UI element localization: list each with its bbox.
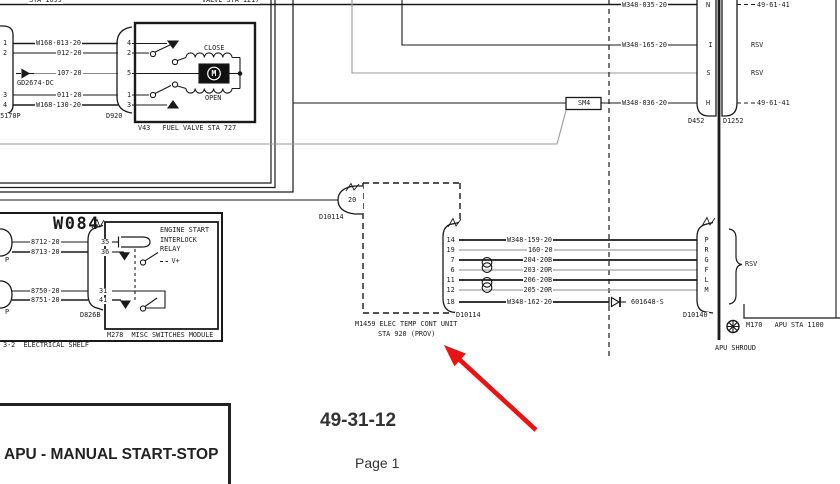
- diode-gd2674-icon: [16, 70, 34, 78]
- pin-label: 3: [126, 102, 132, 109]
- wire-label: 8713-20: [30, 249, 61, 256]
- pin-label: 19: [446, 247, 456, 254]
- section-number: 49-31-12: [320, 410, 396, 432]
- top-fragment-left: STA 1099: [28, 0, 63, 4]
- pin-label: 35: [100, 239, 110, 246]
- wire-label: W348-165-20: [621, 42, 668, 49]
- relay-name: RELAY: [159, 246, 181, 253]
- pin-label: 3: [2, 92, 8, 99]
- title-block-border: [0, 405, 230, 484]
- pin-label: 14: [446, 237, 456, 244]
- fuel-valve-box: [135, 23, 255, 122]
- equipment-label: V43 FUEL VALVE STA 727: [137, 125, 237, 132]
- pin-label: 36: [100, 249, 110, 256]
- connector-label: D920: [105, 113, 123, 120]
- pin-label: L: [704, 277, 710, 284]
- relay-name: INTERLOCK: [159, 237, 198, 244]
- wire-label: 011-20: [56, 92, 83, 99]
- wire-label: 206-20B: [523, 277, 554, 284]
- plug-label: P: [4, 309, 10, 316]
- pin-label: 5: [126, 70, 132, 77]
- shelf-label: 3-2 ELECTRICAL SHELF: [2, 342, 90, 349]
- pin-label: 20: [347, 197, 357, 204]
- close-coil-icon: [186, 53, 232, 58]
- plug-p-top-shape: [0, 229, 12, 256]
- relay-coil-icon: [119, 237, 151, 248]
- pin-label: 7: [450, 257, 456, 264]
- connector-d1252-shape: [722, 0, 737, 116]
- module-label: M278 MISC SWITCHES MODULE: [106, 332, 214, 339]
- wire-s-row: [352, 0, 697, 73]
- contact-arrow-down-icon: [121, 301, 130, 308]
- vplus-label: V+: [171, 258, 181, 265]
- diagram-title: APU - MANUAL START-STOP: [4, 446, 218, 464]
- wire-label: W168-130-20: [35, 102, 82, 109]
- wire-label: W348-036-20: [621, 100, 668, 107]
- plug-p-bottom-shape: [0, 281, 12, 308]
- pin-label: P: [704, 237, 710, 244]
- rsv-label: RSV: [750, 42, 764, 49]
- rsv-label: RSV: [744, 261, 758, 268]
- pin-label: N: [705, 2, 711, 9]
- wire-label: 203-20R: [523, 267, 554, 274]
- splice-label: SM4: [577, 100, 591, 107]
- contact-arrow-down-icon: [120, 253, 129, 260]
- rsv-brace: [729, 229, 742, 304]
- pin-label: G: [704, 257, 710, 264]
- connector-label: D5170P: [0, 113, 22, 120]
- wiring-diagram-page: STA 1099 VALVE STA 1217 W168-013-20 012-…: [0, 0, 840, 484]
- pin-label: 4: [2, 102, 8, 109]
- diode-label: 601648-S: [630, 299, 665, 306]
- pin-label: 4: [126, 40, 132, 47]
- wire-label: W168-013-20: [35, 40, 82, 47]
- pin-label: I: [708, 42, 714, 49]
- wire-route-2: [0, 0, 275, 188]
- switch-arm: [155, 45, 171, 53]
- reference-note: 49-61-41: [756, 2, 791, 9]
- pin-label: 11: [446, 277, 456, 284]
- pin-label: 1: [2, 40, 8, 47]
- wire-label: 107-20: [56, 70, 83, 77]
- pin-label: F: [704, 267, 710, 274]
- switch-arm: [145, 253, 158, 261]
- pin-label: 41: [98, 297, 108, 304]
- connector-label: D1252: [722, 118, 744, 125]
- equipment-label: M170 APU STA 1100: [745, 322, 825, 329]
- diode-601648-icon: [609, 297, 626, 307]
- wire-label: 204-20B: [523, 257, 554, 264]
- wire-label: 8750-20: [30, 288, 61, 295]
- pin-label: H: [705, 100, 711, 107]
- top-fragment-right: VALVE STA 1217: [201, 0, 260, 4]
- pin-label: R: [704, 247, 710, 254]
- contact-arrow-down-icon: [168, 41, 178, 48]
- wire-label: 160-20: [527, 247, 554, 254]
- connector-label: D452: [687, 118, 705, 125]
- pin-label: M: [704, 287, 710, 294]
- connector-label: D826B: [79, 312, 101, 319]
- open-label: OPEN: [204, 95, 222, 102]
- pin-label: 18: [446, 299, 456, 306]
- wire-label: W348-035-20: [621, 2, 668, 9]
- pin-label: 2: [2, 50, 8, 57]
- relay-name: ENGINE START: [159, 227, 210, 234]
- contact-arrow-up-icon: [168, 101, 178, 108]
- rsv-label: RSV: [750, 70, 764, 77]
- reference-note: 49-61-41: [756, 100, 791, 107]
- equipment-label: STA 920 (PROV): [377, 331, 436, 338]
- wire-gray-long: [0, 111, 566, 145]
- pin-label: 31: [98, 288, 108, 295]
- wire-label: 205-20R: [523, 287, 554, 294]
- wire-label: 8751-20: [30, 297, 61, 304]
- wire-label: W348-159-20: [506, 237, 553, 244]
- switch-arm: [155, 86, 171, 94]
- pin-label: S: [706, 70, 712, 77]
- ground-icon: [727, 321, 739, 333]
- wire-label: 012-20: [56, 50, 83, 57]
- pin-label: 6: [450, 267, 456, 274]
- page-number: Page 1: [355, 455, 399, 471]
- motor-letter: M: [212, 70, 217, 78]
- plug-label: P: [4, 257, 10, 264]
- connector-label: D10114: [318, 214, 345, 221]
- equipment-label: M1459 ELEC TEMP CONT UNIT: [354, 321, 458, 328]
- switch-arm: [145, 298, 157, 307]
- pin-label: 1: [126, 92, 132, 99]
- wire-label: 8712-20: [30, 239, 61, 246]
- annotation-arrow: [444, 345, 536, 430]
- wire-label: W348-162-20: [506, 299, 553, 306]
- open-coil-icon: [186, 89, 232, 94]
- close-label: CLOSE: [203, 45, 225, 52]
- connector-label: D10140: [682, 312, 709, 319]
- junction-dot: [238, 71, 243, 76]
- diode-label: GD2674-DC: [16, 80, 55, 87]
- connector-label: D10114: [455, 312, 482, 319]
- pin-label: 2: [126, 50, 132, 57]
- wire-route-3: [0, 0, 293, 192]
- bundle-label: W084: [53, 216, 100, 234]
- shroud-label: APU SHROUD: [714, 345, 757, 352]
- shroud-inner-edge: [744, 304, 840, 318]
- pin-label: 12: [446, 287, 456, 294]
